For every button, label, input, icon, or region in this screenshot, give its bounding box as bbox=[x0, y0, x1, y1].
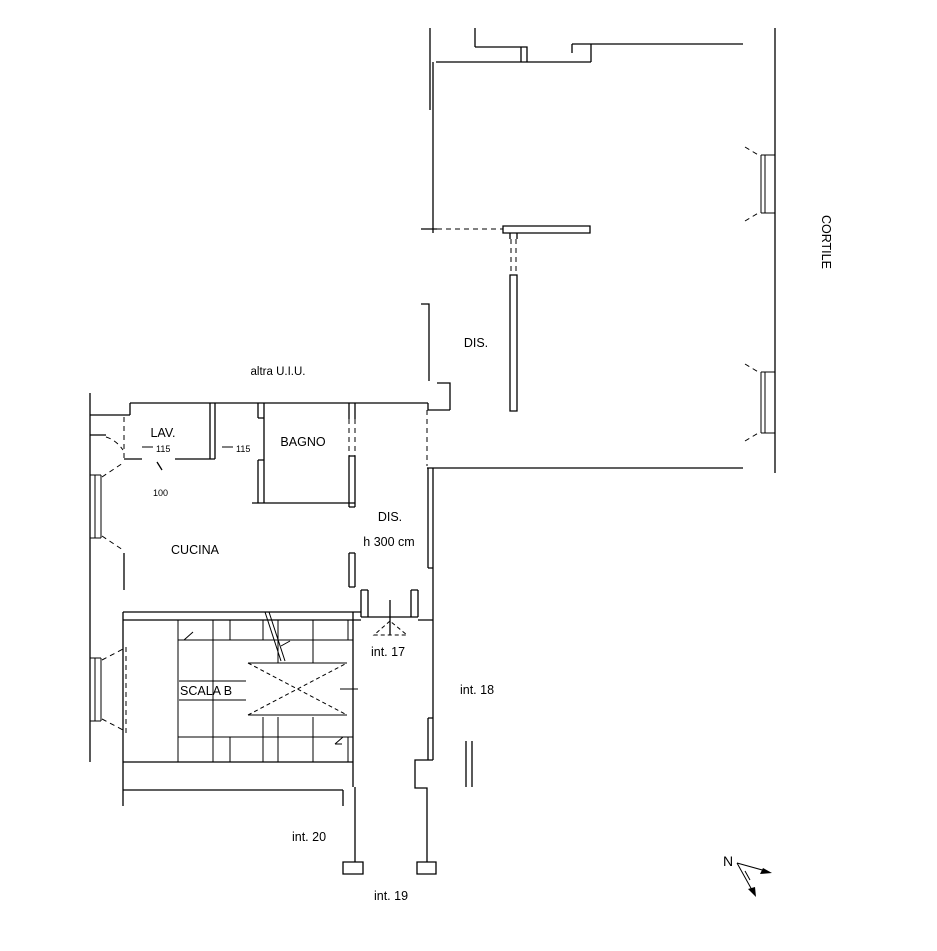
dim-width-lav: 100 bbox=[153, 488, 168, 498]
corridor-int19 bbox=[343, 468, 472, 874]
stair-cross-mark bbox=[248, 663, 347, 715]
unit-label-int18: int. 18 bbox=[460, 683, 494, 697]
room-label-dis-corridor: DIS. bbox=[378, 510, 402, 524]
room-label-dis-height: h 300 cm bbox=[363, 535, 414, 549]
dim-door-bagno: 115 bbox=[236, 444, 250, 454]
room-label-bagno: BAGNO bbox=[280, 435, 325, 449]
room-label-dis-upper: DIS. bbox=[464, 336, 488, 350]
room-label-lav: LAV. bbox=[150, 426, 175, 440]
cortile-window-upper bbox=[761, 155, 775, 213]
north-arrow: N bbox=[723, 853, 772, 897]
cortile-window-ticks bbox=[745, 147, 760, 441]
staircase-scala-b bbox=[123, 612, 361, 806]
left-wing-walls bbox=[90, 393, 450, 762]
walls-upper-right-room bbox=[421, 28, 775, 473]
north-label: N bbox=[723, 853, 733, 869]
north-arrow-head-east bbox=[760, 868, 772, 874]
upper-room-outer-walls bbox=[421, 28, 775, 473]
floor-plan-svg: altra U.I.U. LAV. 115 115 100 BAGNO DIS.… bbox=[0, 0, 937, 951]
cortile-window-lower bbox=[761, 372, 775, 433]
label-altra-uiu: altra U.I.U. bbox=[251, 366, 306, 378]
left-entrance-door-dashes bbox=[106, 417, 124, 460]
walls-left-wing bbox=[90, 393, 450, 762]
upper-room-partition-dashes bbox=[437, 229, 516, 275]
north-arrow-lines bbox=[737, 863, 766, 890]
stair-outer-walls bbox=[123, 612, 361, 806]
floor-plan-page: altra U.I.U. LAV. 115 115 100 BAGNO DIS.… bbox=[0, 0, 937, 951]
unit-label-int17: int. 17 bbox=[371, 645, 405, 659]
landing-int17 bbox=[361, 590, 433, 635]
unit-label-int19: int. 19 bbox=[374, 889, 408, 903]
label-cortile: CORTILE bbox=[819, 215, 833, 269]
bagno-door-dashes bbox=[349, 419, 355, 456]
corridor-walls bbox=[343, 468, 472, 874]
left-facade-window-lower bbox=[90, 658, 101, 721]
int17-door-jambs bbox=[361, 590, 433, 635]
north-arrow-head-south bbox=[748, 887, 756, 897]
room-label-cucina: CUCINA bbox=[171, 543, 220, 557]
room-label-scala-b: SCALA B bbox=[180, 684, 232, 698]
unit-label-int20: int. 20 bbox=[292, 830, 326, 844]
left-facade-window-upper bbox=[90, 475, 101, 538]
dim-door-lav: 115 bbox=[156, 444, 170, 454]
